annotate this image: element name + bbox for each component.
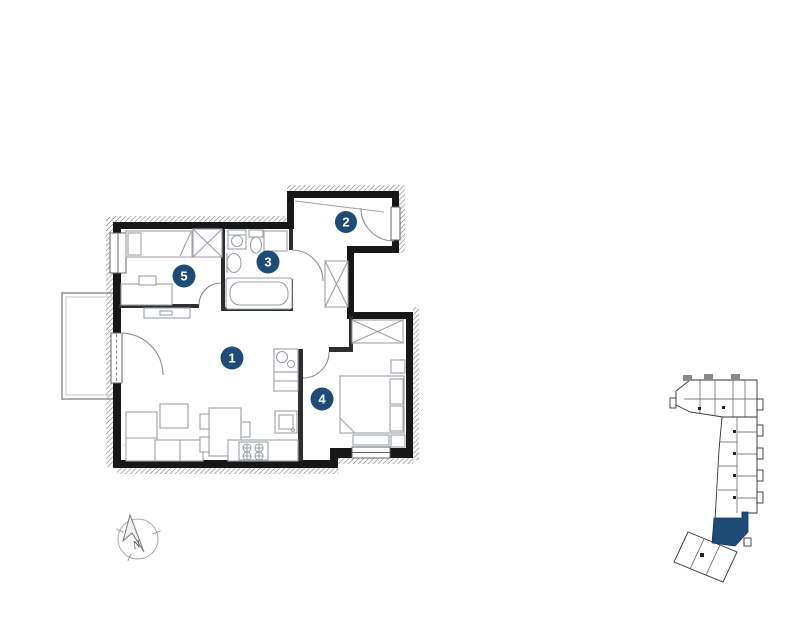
nightstand-icon	[391, 360, 405, 373]
compass: N	[116, 515, 160, 561]
coffee-table-icon	[160, 404, 188, 428]
shelf-icon	[144, 308, 190, 318]
bath-cabinet-icon	[264, 231, 287, 251]
floorplan-page: 1 2 3 4 5	[0, 0, 805, 617]
room-marker-5[interactable]: 5	[173, 265, 196, 288]
desk-icon	[121, 276, 172, 305]
double-bed-icon	[340, 376, 404, 433]
washing-machine-icon	[228, 230, 246, 249]
stove-icon	[239, 442, 268, 460]
balcony-door-arc	[121, 333, 163, 375]
sink-icon	[227, 253, 241, 273]
building-head-section	[670, 374, 757, 417]
bench-icon	[353, 435, 389, 445]
svg-text:5: 5	[180, 269, 187, 284]
entrance-door-arc	[361, 208, 394, 241]
wardrobe-icon	[193, 229, 222, 257]
room-marker-2[interactable]: 2	[335, 211, 357, 233]
room-marker-1[interactable]: 1	[221, 347, 244, 370]
svg-text:3: 3	[264, 255, 271, 270]
svg-text:1: 1	[228, 351, 235, 366]
bedroom5-door-arc	[199, 283, 221, 305]
svg-text:2: 2	[342, 215, 349, 230]
bathroom-door-arc	[292, 250, 323, 281]
nightstand-icon	[391, 435, 405, 447]
toilet-icon	[249, 230, 263, 253]
entrance-door-opening	[391, 207, 400, 240]
building-locator-map	[670, 374, 763, 582]
hall-diagonal-line	[295, 201, 384, 212]
svg-text:4: 4	[318, 392, 326, 407]
balcony-door	[111, 333, 122, 383]
single-bed-icon	[126, 231, 192, 257]
bedroom4-door-arc	[303, 352, 329, 378]
room-marker-4[interactable]: 4	[311, 388, 334, 411]
room-marker-3[interactable]: 3	[257, 251, 280, 274]
corridor-wardrobe-icon	[325, 261, 348, 307]
living-room-furniture	[126, 349, 298, 461]
bedroom4-window	[352, 447, 390, 458]
bathroom-fixtures	[226, 230, 292, 309]
wardrobe-icon	[352, 320, 403, 343]
bedroom5-window	[110, 233, 126, 273]
apartment-plan: 1 2 3 4 5	[62, 185, 419, 474]
floor-plan-canvas: 1 2 3 4 5	[0, 0, 805, 617]
bedroom5-furniture	[121, 229, 222, 318]
bathtub-icon	[226, 278, 292, 309]
